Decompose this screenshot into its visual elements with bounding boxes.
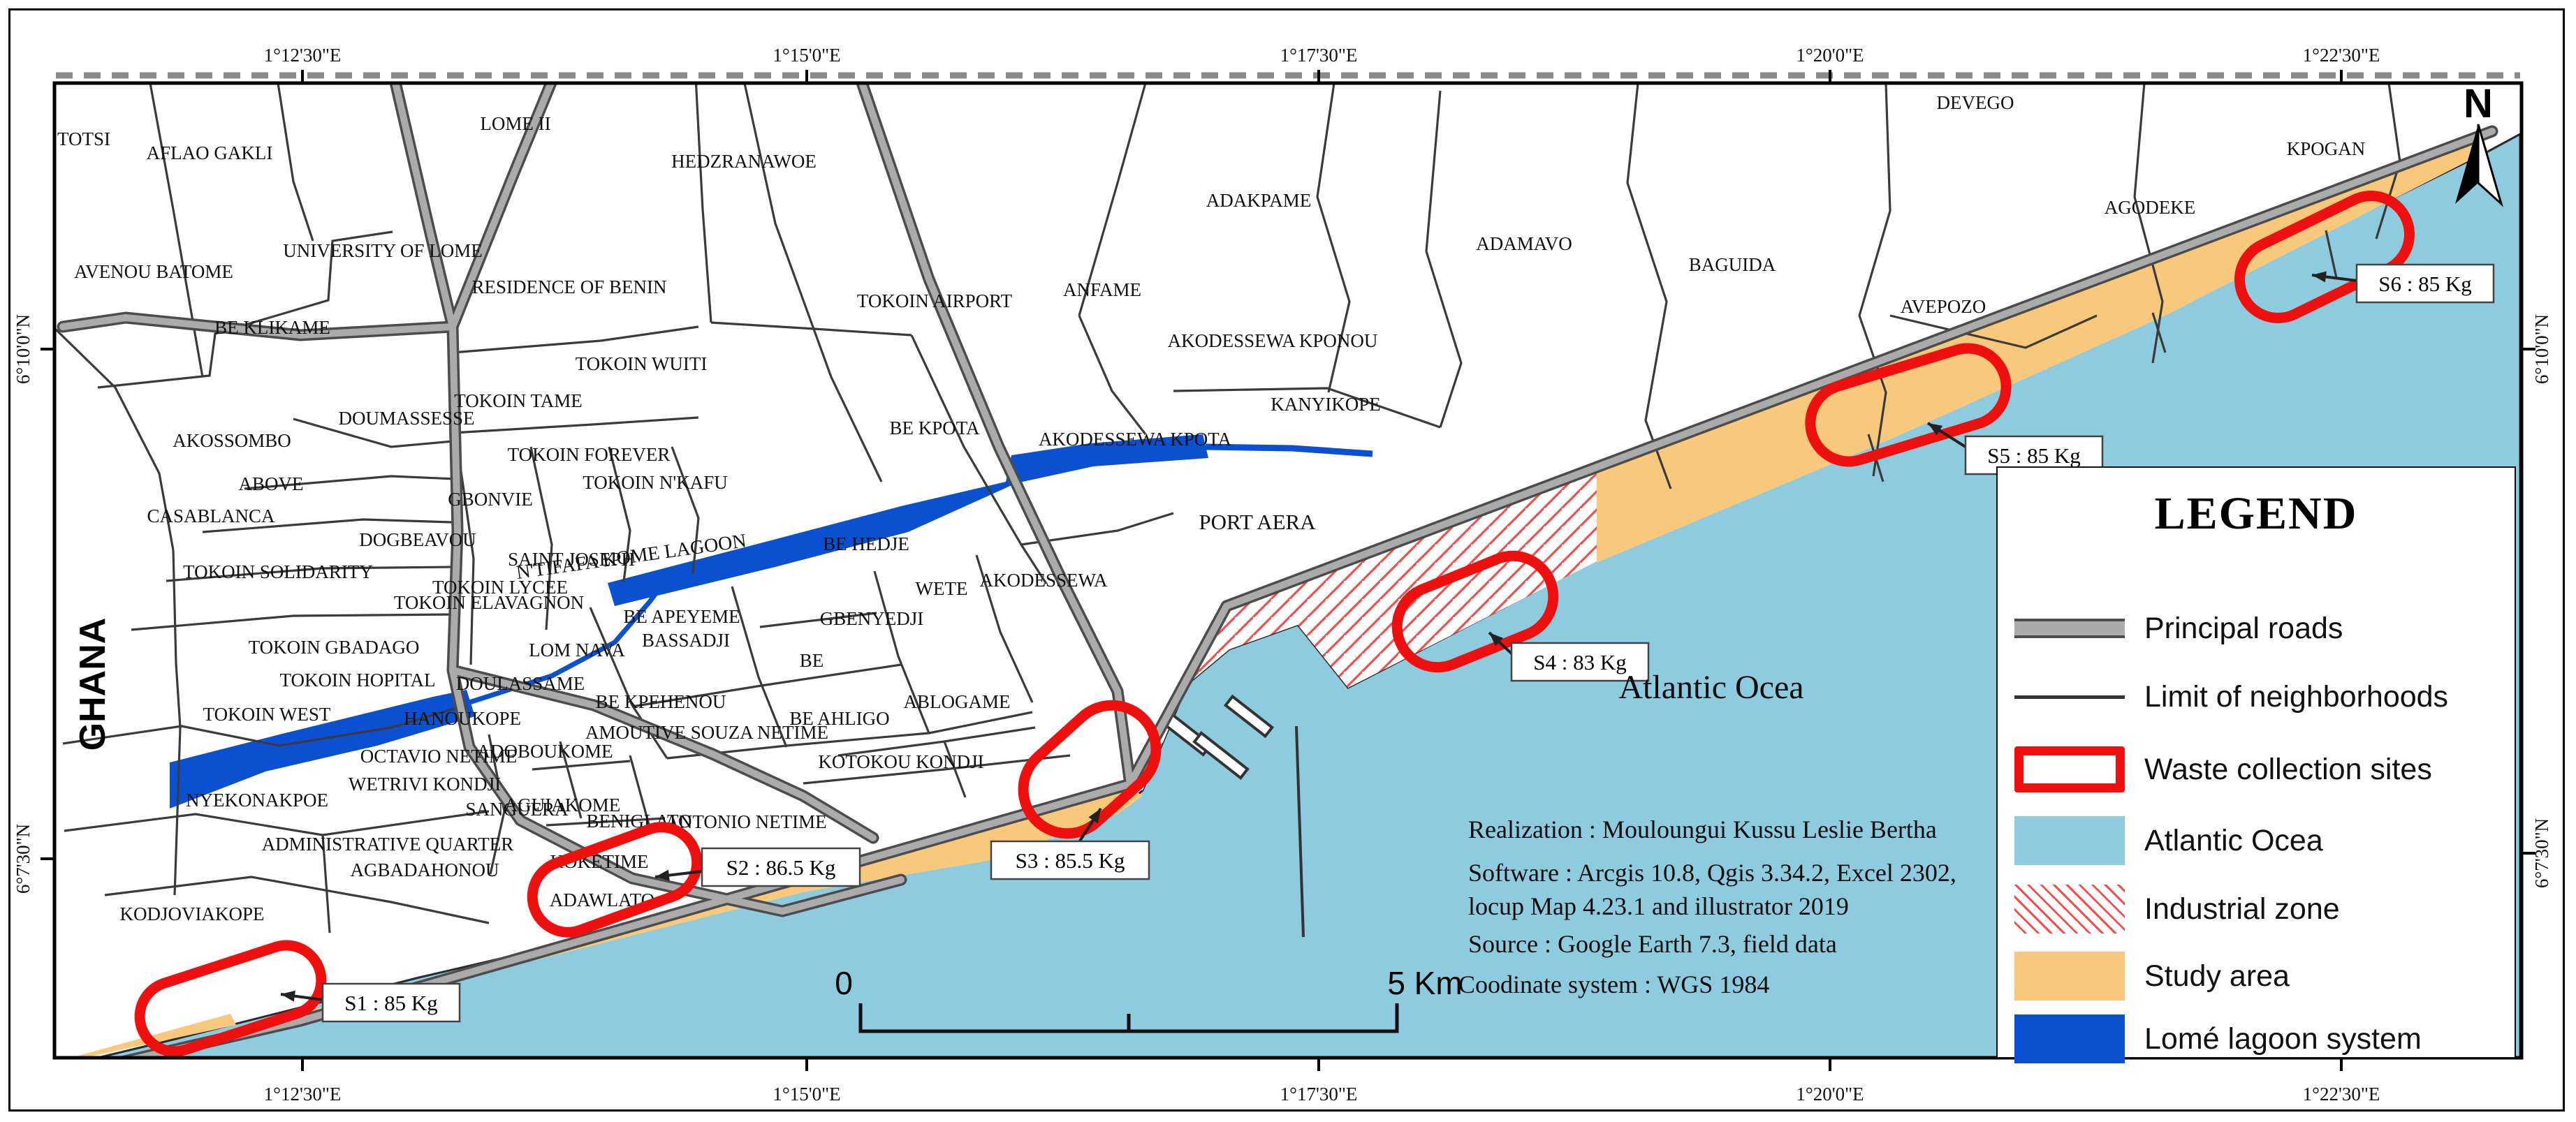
legend-panel: LEGEND Principal roads Limit of neighbor…	[1996, 466, 2516, 1058]
ocean-swatch-icon	[2014, 816, 2125, 865]
map-figure: AGBALEPEDOGANTOTSIAFLAO GAKLILOME IIHEDZ…	[0, 0, 2576, 1122]
road-swatch-icon	[2014, 619, 2125, 638]
legend-item-waste-sites: Waste collection sites	[2014, 741, 2432, 797]
legend-title: LEGEND	[1998, 487, 2515, 540]
limit-swatch-icon	[2014, 695, 2125, 699]
lagoon-swatch-icon	[2014, 1014, 2125, 1063]
study-swatch-icon	[2014, 952, 2125, 1001]
legend-item-limit: Limit of neighborhoods	[2014, 669, 2448, 725]
legend-item-principal-roads: Principal roads	[2014, 600, 2343, 656]
legend-item-lagoon: Lomé lagoon system	[2014, 1011, 2422, 1067]
waste-swatch-icon	[2014, 746, 2125, 792]
industrial-swatch-icon	[2014, 885, 2125, 933]
legend-item-industrial: Industrial zone	[2014, 881, 2340, 937]
legend-item-study-area: Study area	[2014, 948, 2290, 1004]
legend-item-ocean: Atlantic Ocea	[2014, 813, 2323, 869]
